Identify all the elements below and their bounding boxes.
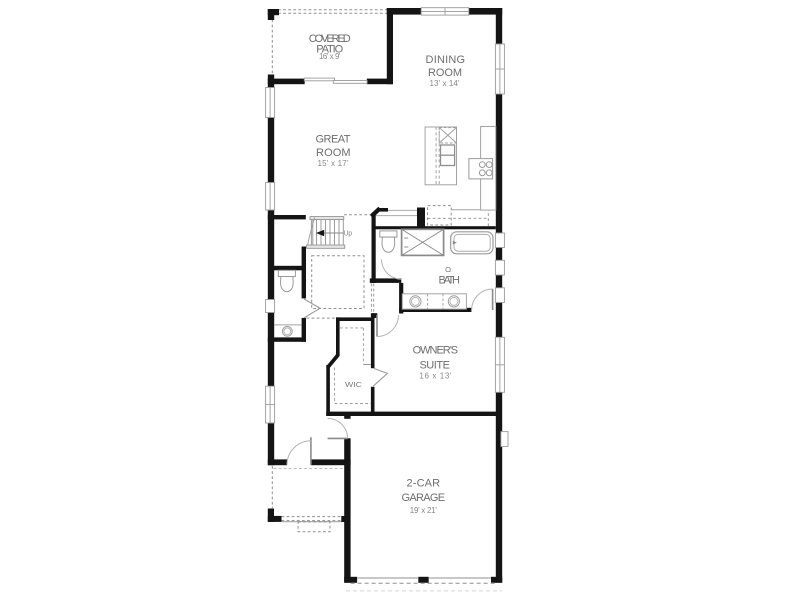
svg-text:GARAGE: GARAGE bbox=[402, 492, 446, 504]
svg-text:OWNER'S: OWNER'S bbox=[413, 345, 459, 357]
svg-text:ROOM: ROOM bbox=[428, 67, 462, 79]
svg-text:BATH: BATH bbox=[438, 275, 460, 287]
svg-text:19' x 21': 19' x 21' bbox=[410, 506, 437, 515]
svg-text:WIC: WIC bbox=[345, 380, 363, 389]
svg-text:Up: Up bbox=[344, 229, 352, 238]
svg-text:16' x 9': 16' x 9' bbox=[319, 52, 341, 61]
svg-text:2-CAR: 2-CAR bbox=[407, 478, 441, 490]
svg-text:13' x 14': 13' x 14' bbox=[430, 79, 460, 88]
svg-text:16 x 13': 16 x 13' bbox=[419, 371, 451, 380]
svg-text:SUITE: SUITE bbox=[419, 360, 450, 372]
svg-text:15' x 17': 15' x 17' bbox=[318, 159, 349, 168]
svg-text:DINING: DINING bbox=[426, 54, 466, 66]
svg-text:ROOM: ROOM bbox=[316, 147, 351, 159]
svg-text:O.: O. bbox=[445, 265, 451, 274]
svg-text:GREAT: GREAT bbox=[316, 134, 351, 146]
